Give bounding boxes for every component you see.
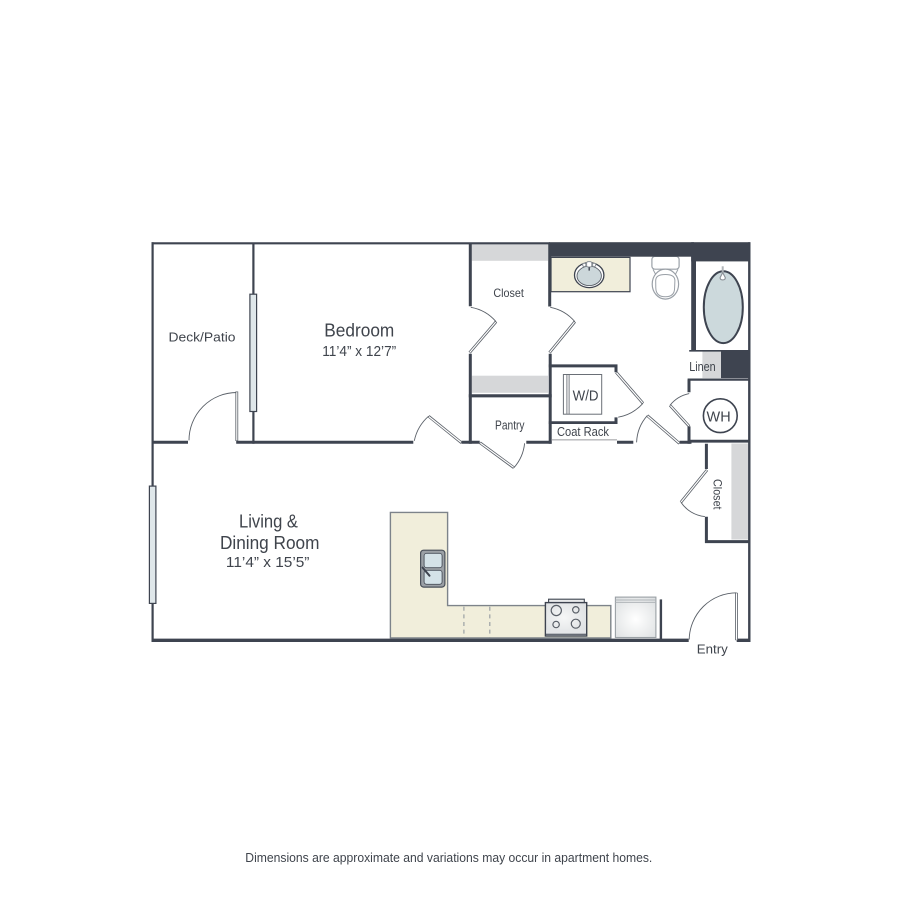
svg-text:Deck/Patio: Deck/Patio [169,330,236,345]
svg-text:W/D: W/D [573,387,599,404]
svg-text:Coat Rack: Coat Rack [557,425,610,439]
svg-text:Bedroom: Bedroom [324,320,394,341]
svg-text:11’4” x 15’5”: 11’4” x 15’5” [226,554,310,571]
svg-text:Pantry: Pantry [495,418,525,432]
svg-text:Closet: Closet [711,479,725,510]
svg-text:Dining Room: Dining Room [220,532,320,553]
svg-text:Dimensions are approximate and: Dimensions are approximate and variation… [245,851,652,865]
svg-text:Entry: Entry [697,643,729,657]
svg-text:Living &: Living & [239,510,299,531]
svg-text:WH: WH [707,409,731,426]
svg-text:11’4” x 12’7”: 11’4” x 12’7” [322,343,396,360]
svg-text:Linen: Linen [689,360,715,374]
svg-text:Closet: Closet [493,286,524,300]
